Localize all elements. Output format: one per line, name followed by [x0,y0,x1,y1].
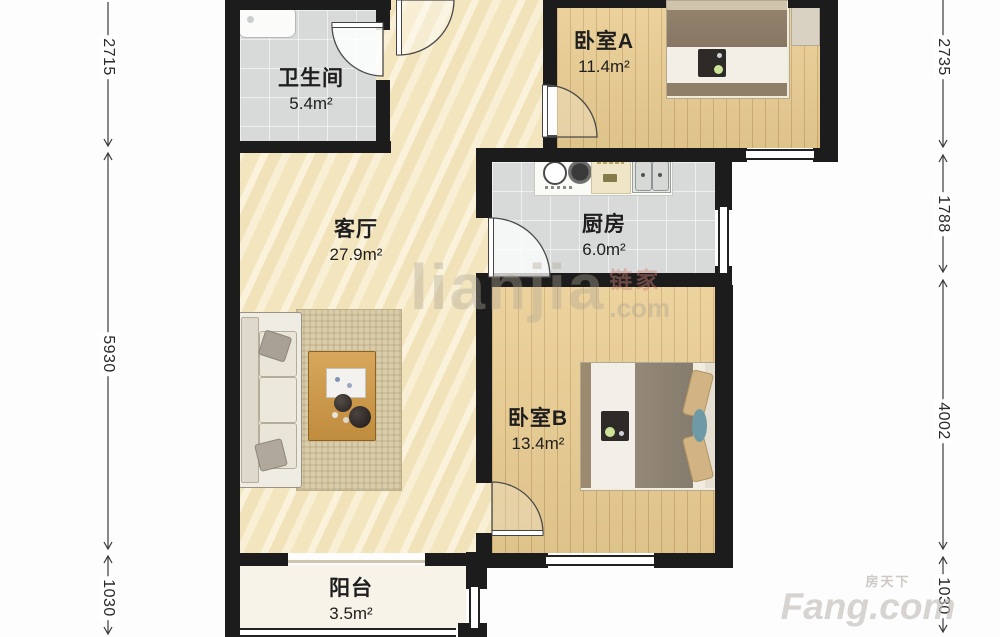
room-label-kitchen: 厨房 6.0m² [582,208,626,260]
table-tray [326,368,366,398]
window-kitchen [718,207,729,273]
double-sink [632,158,671,193]
window-bedroom-b [546,555,654,566]
room-label-living-room: 客厅 27.9m² [330,213,383,265]
dim-left-2715: 2715 [99,35,117,79]
bed-b-roll-pillow [692,409,707,442]
bed-a-sheet [667,47,787,83]
wall-bedroom-a-bottom-corner [813,148,838,162]
bed-b-tray-dot [619,431,624,436]
dimension-line-left [104,2,112,634]
dim-right-1788: 1788 [934,192,952,236]
dim-left-5930: 5930 [99,332,117,376]
kitchen-area: 6.0m² [582,240,625,260]
room-label-balcony: 阳台 3.5m² [329,572,373,624]
wall-kitchen-right-upper [715,148,732,210]
bed-b-tray-dot [605,427,615,437]
bathroom-name: 卫生间 [278,62,344,92]
wall-bedroom-a-left-upper [543,0,557,87]
balcony-threshold [287,560,425,563]
wall-living-bottom-left [225,553,288,566]
coffee-table [308,351,376,441]
table-cup [343,417,349,423]
watermark-fang-text: Fang.com [781,590,956,623]
watermark-fang-cn: 房天下 [865,571,910,590]
bed-a-tray-dot [717,53,722,58]
sink-basin [652,161,669,191]
stove-burner-icon [568,160,592,184]
table-cup [332,412,338,418]
bathroom-area: 5.4m² [289,94,332,114]
wall-bathroom-right-upper [376,8,390,30]
bed-b [580,362,719,491]
sink-drain [658,173,662,177]
nightstand [791,4,820,46]
dim-right-4002: 4002 [934,399,952,443]
bedroom-b-name: 卧室B [508,402,568,432]
bedroom-a-door-leaf [543,85,548,137]
bed-a-tray-dot [714,65,723,74]
bed-b-blanket [635,363,693,488]
sofa-cushion [259,377,297,423]
bedroom-b-area: 13.4m² [512,434,565,454]
dimension-line-right [939,0,947,632]
bed-b-tray [601,411,629,441]
room-label-bedroom-a: 卧室A 11.4m² [574,25,634,77]
dim-left-1030: 1030 [99,576,117,620]
table-vase [334,394,352,412]
wall-kitchen-bottom [476,273,732,287]
kitchen-name: 厨房 [582,208,626,238]
stove-burner-icon [543,161,567,185]
window-balcony-front [240,628,456,637]
bed-b-footboard [581,363,591,488]
sink-drain [641,173,645,177]
bed-a [666,0,790,99]
bed-a-footer [667,83,787,96]
dim-right-2735: 2735 [934,35,952,79]
tray-item [347,383,352,388]
wall-mid-upper [476,148,492,218]
watermark-fang: 房天下 Fang.com [781,571,956,623]
living-room-area: 27.9m² [330,245,383,265]
wall-top-bathroom [225,0,391,10]
wall-balcony-right-upper [466,552,487,589]
stove-controls [545,186,575,189]
sink-basin [635,161,652,191]
balcony-name: 阳台 [329,572,373,602]
bed-a-pillow-strip [667,1,787,10]
bedroom-a-area: 11.4m² [578,57,630,77]
tray-item [335,377,340,382]
wall-bedroom-b-right [715,285,733,555]
sofa [238,312,302,488]
table-vase [349,406,371,428]
dim-right-1030: 1030 [934,574,952,618]
sofa-back [241,317,259,483]
wall-bedroom-b-bottom-right [654,553,733,568]
balcony-area: 3.5m² [329,604,372,624]
window-balcony-side [469,587,480,628]
console-vent [603,174,617,182]
room-label-bedroom-b: 卧室B 13.4m² [508,402,568,454]
wall-mid-middle [476,277,492,483]
window-bedroom-a [746,149,814,160]
living-room-name: 客厅 [334,213,378,243]
wall-bedroom-a-right [820,0,838,162]
floorplan-image: 2715 5930 1030 2735 1788 4002 1030 卫生间 5… [0,0,1000,637]
bathtub [238,6,296,38]
bedroom-a-name: 卧室A [574,25,634,55]
bed-a-tray [698,49,726,77]
bathtub-drain [247,16,254,23]
bed-a-blanket [667,10,787,47]
wall-top-bedroom-a-left [543,0,666,8]
wall-left-outer [225,0,240,637]
wall-bathroom-bottom [225,141,391,153]
room-label-bathroom: 卫生间 5.4m² [278,62,344,114]
wall-bedroom-a-bottom [476,148,747,162]
